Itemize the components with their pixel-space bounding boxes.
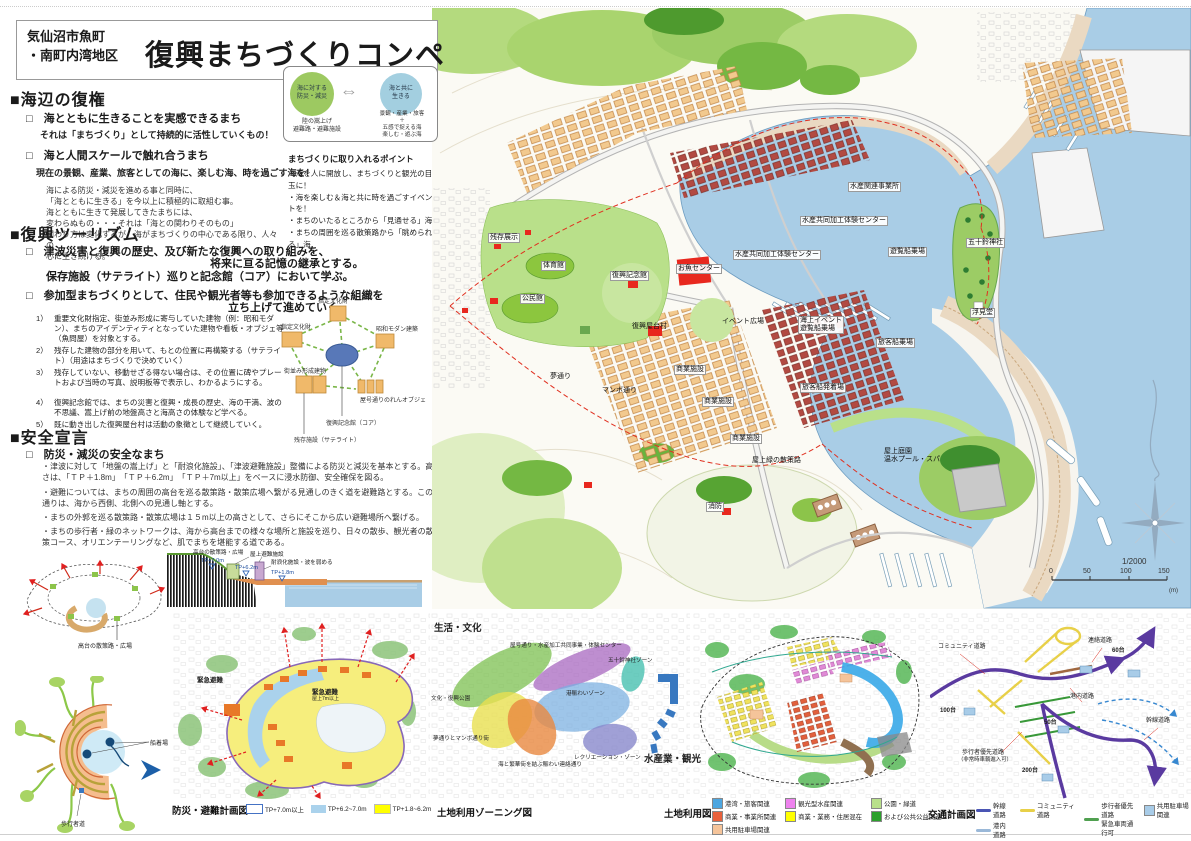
safety-bullet-1: ・津波に対して「地盤の嵩上げ」と「耐浪化施設」、「津波避難施設」整備による防災と…	[42, 461, 440, 483]
map-label-teien: 屋上庭園 温水プール・スパ	[884, 448, 940, 463]
svg-text:高台の散策路・広場: 高台の散策路・広場	[193, 549, 244, 556]
map-label-shogyo-1: 商業施設	[674, 365, 706, 375]
section-heading-safety: ■安全宣言	[10, 424, 89, 448]
zoning-label-isuzu: 五十鈴神社ゾーン	[608, 658, 652, 664]
svg-text:指定文化財: 指定文化財	[281, 323, 311, 331]
legend-item-parking: 共用駐車場関連	[712, 824, 776, 835]
section-heading-umibe: ■海辺の復権	[10, 86, 106, 110]
svg-text:街並み形成建物: 街並み形成建物	[284, 367, 326, 375]
traffic-parking-200: 200台	[1022, 768, 1038, 775]
legend-item-harbor: 港内道路	[976, 821, 1011, 839]
bousai-label-c2: 屋上7m以上	[312, 697, 339, 703]
section-water	[285, 582, 422, 607]
swatch-commerce	[712, 811, 723, 822]
tourism-check1-l3: 保存施設（サテライト）巡りと記念館（コア）において学ぶ。	[46, 268, 354, 284]
map-label-hatchaku: 旅客船発着場	[800, 383, 846, 393]
traffic-label-hokosha1: 歩行者優先道路	[962, 750, 1004, 757]
swatch-fishery	[785, 798, 796, 809]
traffic-parking-60: 60台	[1112, 648, 1125, 655]
map-label-kinenkan: 復興記念館	[610, 271, 649, 281]
svg-text:耐浪化施設・波を弱める: 耐浪化施設・波を弱める	[271, 558, 333, 566]
legend-item-trunk: 幹線道路	[976, 801, 1011, 819]
boat-dock-2	[106, 738, 115, 747]
map-label-zanzon: 残存展示	[488, 233, 520, 243]
map-label-suisan-office: 水産関連事業所	[848, 182, 901, 192]
map-label-taiikukan: 体育館	[541, 261, 566, 271]
legend-item-port: 港湾・旅客関連	[712, 798, 776, 809]
zoning-big-left: 生活・文化	[434, 620, 482, 634]
map-label-ryokaku: 旅客船乗場	[876, 338, 915, 348]
map-label-kako1: 水産共同加工体験センター	[800, 216, 888, 226]
swatch-public	[871, 811, 882, 822]
legend-traffic: 幹線道路 港内道路 コミュニティ道路 歩行者優先道路 緊急車両通行可 共用駐車場…	[976, 801, 1191, 839]
swatch-tp70	[246, 804, 263, 814]
panel-bousai-map	[172, 612, 430, 800]
traffic-parking-100: 100台	[940, 708, 956, 715]
parking-peach	[750, 710, 763, 719]
map-label-ukimido: 浮見堂	[970, 308, 995, 318]
umibe-check2: □ 海と人間スケールで触れ合うまち	[26, 147, 209, 163]
district-name: 気仙沼市魚町 ・南町内湾地区	[27, 28, 118, 66]
sea-concept-diagram: 海に対する防災・減災 ⇔ 海と共に生きる 陸の嵩上げ 避難路・避難施設 景観・産…	[283, 66, 438, 142]
swatch-park	[871, 798, 882, 809]
map-label-yuransen: 遊覧船乗場	[888, 247, 927, 257]
panel-landuse-map	[692, 612, 930, 800]
svg-text:TP+7.0m: TP+7.0m	[201, 558, 224, 564]
safety-check1: □ 防災・減災の安全なまち	[26, 446, 165, 462]
swatch-port	[712, 798, 723, 809]
tourism-item-4: 4）復興記念館では、まちの災害と復興・成長の歴史、海の干満、波の不思議、嵩上げ前…	[36, 398, 286, 418]
safety-bullet-3: ・まちの外郭を巡る散策路・散策広場は１５m以上の高さとして、さらにそこから広い避…	[42, 512, 442, 523]
traffic-label-kansen: 幹線道路	[1146, 718, 1170, 725]
point-item: ・海を楽しむ＆海と共に時を過ごすイベントを！	[288, 192, 438, 216]
satellite-core-diagram: 指定文化財 指定文化財 昭和モダン建築 街並み形成建物 屋号通りのれんオブジェ …	[280, 294, 440, 444]
district-line1: 気仙沼市魚町	[27, 28, 118, 47]
top-rule	[0, 6, 1191, 7]
swatch-mixed	[785, 811, 796, 822]
umibe-check1-sub: それは「まちづくり」として持続的に活性していくもの！	[40, 128, 273, 141]
double-arrow-icon: ⇔	[340, 81, 358, 102]
swatch-parking-traffic	[1144, 805, 1155, 816]
legend-item-tp62: TP+6.2~7.0m	[311, 804, 367, 814]
svg-text:屋号通りのれんオブジェ: 屋号通りのれんオブジェ	[360, 396, 426, 404]
svg-text:TP+1.8m: TP+1.8m	[271, 570, 294, 576]
parking-peach2	[840, 674, 852, 682]
venn-left-caption: 陸の嵩上げ 避難路・避難施設	[286, 119, 348, 134]
master-plan-map: 1/2000 0 50 100 150 (m)	[432, 8, 1191, 609]
legend-bousai: TP+7.0m以上 TP+6.2~7.0m TP+1.8~6.2m	[246, 804, 431, 814]
core-node	[326, 344, 358, 366]
zoning-label-minato: 港賑わいゾーン	[566, 691, 605, 697]
tourism-item-3: 3）残存していない、移動せざる得ない場合は、その位置に碑やプレートおよび当時の写…	[36, 368, 286, 388]
traffic-label-konai: 港内道路	[1070, 694, 1094, 701]
swatch-community	[1020, 809, 1035, 812]
map-label-shobo: 消防	[706, 502, 724, 512]
city-texture	[930, 612, 1191, 800]
tourism-item-2: 2）残存した建物の部分を用いて、もとの位置に再構築する（サテライト）（用途はまち…	[36, 346, 286, 366]
legend-item-mixed: 商業・業務・住居混在	[785, 811, 862, 822]
town-ring-diagram: 船着場 歩行者道	[15, 676, 180, 834]
legend-item-tp70: TP+7.0m以上	[246, 804, 304, 814]
swatch-pedestrian	[1084, 818, 1099, 821]
boat-dock-label: 船着場	[150, 739, 168, 747]
legend-item-community: コミュニティ道路	[1020, 801, 1075, 819]
swatch-parking	[712, 824, 723, 835]
caption-bousai: 防災・避難計画図	[172, 803, 248, 817]
swatch-trunk	[976, 809, 991, 812]
svg-text:復興記念館（コア）: 復興記念館（コア）	[326, 419, 380, 427]
sea-arrow-icon	[141, 760, 161, 780]
traffic-label-hokosha2: （非常時車輌進入可）	[958, 758, 1012, 764]
map-label-osakana: お魚センター	[676, 264, 722, 274]
legend-item-pedestrian: 歩行者優先道路 緊急車両通行可	[1084, 801, 1135, 837]
svg-text:50: 50	[1083, 568, 1091, 575]
svg-text:指定文化財: 指定文化財	[318, 297, 348, 305]
zoning-label-bunka: 文化・復興公園	[431, 696, 470, 702]
bousai-label-left: 緊急避難	[197, 677, 223, 684]
svg-text:残存施設（サテライト）: 残存施設（サテライト）	[294, 436, 360, 444]
svg-text:0: 0	[1049, 568, 1053, 575]
zoning-label-yago: 屋号通り・水産加工共同事業・体験センター	[510, 643, 622, 649]
safety-bullet-2: ・避難については、まちの周囲の高台を巡る散策路・散策広場へ繋がる見通しのきく道を…	[42, 487, 440, 509]
radial-label: 高台の散策路・広場	[78, 642, 132, 650]
tourism-item-1: 1）重要文化財指定、街並み形成に寄与していた建物（例：昭和モダン）、まちのアイデ…	[36, 314, 286, 344]
safety-bullet-4: ・まちの歩行者・緑のネットワークは、海から高台までの様々な場所と施設を巡り、日々…	[42, 526, 440, 548]
zoning-label-umi: 海と繁華街を結ぶ賑わい連絡通り	[498, 762, 582, 768]
point-item: ・海を人に開放し、まちづくりと観光の目玉に！	[288, 168, 438, 192]
svg-text:(m): (m)	[1169, 588, 1178, 594]
svg-text:TP+6.2m: TP+6.2m	[235, 565, 258, 571]
legend-landuse: 港湾・旅客関連 商業・事業所関連 共用駐車場関連 観光型水産関連 商業・業務・住…	[712, 798, 942, 835]
svg-text:100: 100	[1120, 568, 1132, 575]
district-line2: ・南町内湾地区	[27, 47, 118, 66]
map-label-isuzu: 五十鈴神社	[966, 238, 1005, 248]
zoning-label-recreation: レクリエーション・ゾーン	[574, 755, 641, 761]
walkway-label: 歩行者道	[61, 820, 85, 828]
point-item: ・まちのいたるところから「見通せる」海	[288, 215, 438, 227]
svg-text:屋上避難施設: 屋上避難施設	[250, 550, 284, 558]
traffic-label-community: コミュニティ道路	[938, 644, 986, 651]
svg-text:昭和モダン建築: 昭和モダン建築	[376, 325, 418, 333]
zoning-big-right: 水産業・観光	[644, 751, 701, 765]
venn-right-caption: 景観・産業・旅客 ＋ 五感で捉える海 楽しむ・遊ぶ海	[372, 111, 432, 139]
map-label-okujo-midori: 屋上緑の散策路	[752, 457, 801, 465]
walkway-marker	[79, 788, 84, 793]
boat-dock-1	[83, 750, 92, 759]
seawall-line	[327, 580, 422, 583]
svg-text:1/2000: 1/2000	[1122, 557, 1147, 566]
caption-landuse: 土地利用図	[664, 806, 712, 820]
traffic-parking-50: 50台	[1044, 720, 1057, 727]
bay-inlet	[316, 704, 385, 753]
map-label-yume: 夢通り	[550, 373, 571, 381]
umibe-check1: □ 海とともに生きることを実感できるまち	[26, 110, 241, 126]
map-label-manbo: マンボ通り	[602, 387, 637, 395]
section-heading-tourism: ■復興ツーリズム	[10, 221, 140, 245]
caption-traffic: 交通計画図	[928, 807, 976, 821]
venn-circle-disaster: 海に対する防災・減災	[290, 72, 334, 116]
zoning-label-yume: 夢通りとマンボ通り街	[433, 736, 489, 742]
svg-text:150: 150	[1158, 568, 1170, 575]
legend-item-tp18: TP+1.8~6.2m	[374, 804, 432, 814]
map-label-kako2: 水産共同加工体験センター	[733, 250, 821, 260]
caption-zoning: 土地利用ゾーニング図	[437, 805, 532, 819]
poster-page: { "header": { "district_line1": "気仙沼市魚町"…	[0, 0, 1191, 841]
swatch-tp62	[311, 805, 326, 813]
swatch-harbor	[976, 829, 991, 832]
legend-item-parking-traffic: 共用駐車場関連	[1144, 801, 1191, 819]
map-label-event-hiroba: イベント広場	[722, 318, 764, 326]
legend-item-commerce: 商業・事業所関連	[712, 811, 776, 822]
radial-network-diagram: 高台の散策路・広場	[12, 556, 170, 674]
points-title: まちづくりに取り入れるポイント	[288, 153, 414, 165]
points-list: ・海を人に開放し、まちづくりと観光の目玉に！ ・海を楽しむ＆海と共に時を過ごすイ…	[288, 168, 438, 250]
map-label-kaijo-event: 海上イベント 遊覧船乗場	[798, 316, 844, 334]
existing-town-texture-left	[432, 188, 490, 388]
bay-circle	[86, 598, 106, 618]
venn-circle-live: 海と共に生きる	[380, 73, 422, 115]
map-label-yataimura: 復興屋台村	[632, 323, 667, 331]
panel-zoning-map	[430, 612, 690, 800]
panel-traffic-map	[930, 612, 1191, 800]
legend-item-fishery: 観光型水産関連	[785, 798, 862, 809]
swatch-tp18	[374, 804, 391, 814]
map-label-shogyo-3: 商業施設	[730, 434, 762, 444]
umibe-check2-sub: 現在の景観、産業、旅客としての海に、楽しむ海、時を過ごす海を！	[36, 166, 315, 179]
traffic-label-renraku: 連絡道路	[1088, 638, 1112, 645]
map-label-kouminkan: 公民館	[520, 294, 545, 304]
map-label-shogyo-2: 商業施設	[702, 397, 734, 407]
cross-section-diagram: 高台の散策路・広場 屋上避難施設 耐浪化施設・波を弱める TP+7.0m TP+…	[167, 549, 422, 611]
